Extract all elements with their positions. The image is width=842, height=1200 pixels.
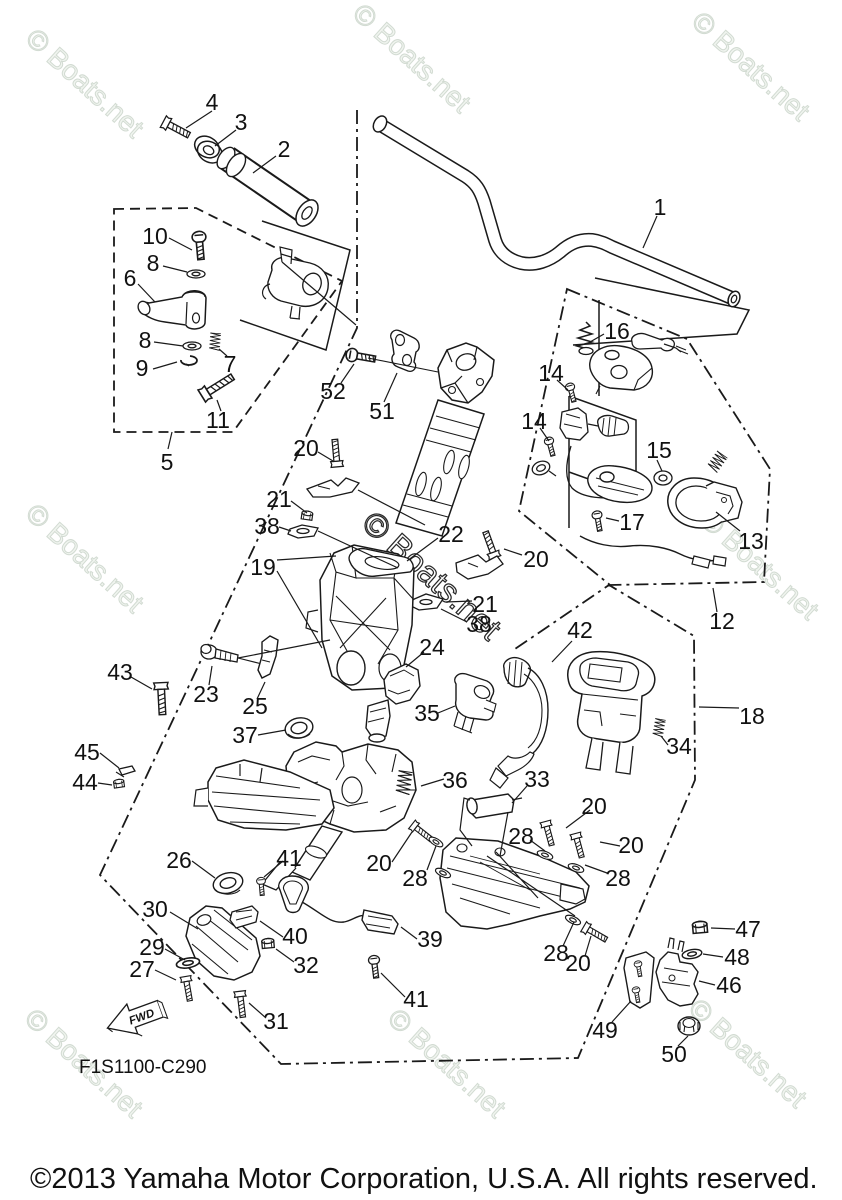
svg-text:18: 18: [739, 703, 765, 729]
svg-text:33: 33: [524, 766, 550, 792]
svg-text:43: 43: [107, 659, 133, 685]
svg-text:5: 5: [161, 449, 174, 475]
svg-text:15: 15: [646, 437, 672, 463]
svg-text:21: 21: [266, 486, 292, 512]
svg-text:42: 42: [567, 617, 593, 643]
svg-text:23: 23: [193, 681, 219, 707]
svg-text:36: 36: [442, 767, 468, 793]
svg-text:7: 7: [224, 351, 237, 377]
svg-text:11: 11: [206, 407, 230, 433]
svg-text:©2013 Yamaha Motor Corporation: ©2013 Yamaha Motor Corporation, U.S.A. A…: [30, 1163, 818, 1195]
svg-text:35: 35: [414, 700, 440, 726]
svg-text:31: 31: [263, 1008, 289, 1034]
svg-text:1: 1: [654, 194, 667, 220]
svg-text:37: 37: [232, 722, 258, 748]
svg-text:17: 17: [619, 509, 645, 535]
svg-text:16: 16: [604, 318, 630, 344]
svg-text:20: 20: [523, 546, 549, 572]
svg-text:30: 30: [142, 896, 168, 922]
svg-text:F1S1100-C290: F1S1100-C290: [79, 1057, 206, 1078]
svg-text:20: 20: [581, 793, 607, 819]
svg-text:48: 48: [724, 944, 750, 970]
svg-text:32: 32: [293, 952, 319, 978]
svg-text:25: 25: [242, 693, 268, 719]
svg-text:40: 40: [282, 923, 308, 949]
svg-text:29: 29: [139, 934, 165, 960]
svg-text:34: 34: [666, 733, 692, 759]
svg-text:28: 28: [543, 940, 569, 966]
svg-text:41: 41: [276, 845, 302, 871]
svg-text:51: 51: [369, 398, 395, 424]
svg-text:2: 2: [278, 136, 291, 162]
svg-text:8: 8: [139, 327, 152, 353]
svg-text:28: 28: [508, 823, 534, 849]
svg-text:44: 44: [72, 769, 98, 795]
svg-text:22: 22: [438, 521, 464, 547]
svg-text:41: 41: [403, 986, 429, 1012]
svg-text:28: 28: [605, 865, 631, 891]
svg-text:13: 13: [738, 528, 764, 554]
svg-text:52: 52: [320, 378, 346, 404]
svg-text:12: 12: [709, 608, 735, 634]
svg-text:26: 26: [166, 847, 192, 873]
svg-text:20: 20: [293, 435, 319, 461]
svg-text:24: 24: [419, 634, 445, 660]
svg-text:8: 8: [147, 250, 160, 276]
svg-text:3: 3: [235, 109, 248, 135]
svg-text:6: 6: [124, 265, 137, 291]
svg-text:20: 20: [565, 950, 591, 976]
svg-text:19: 19: [250, 554, 276, 580]
svg-text:38: 38: [466, 611, 492, 637]
svg-text:20: 20: [618, 832, 644, 858]
svg-text:20: 20: [366, 850, 392, 876]
svg-text:50: 50: [661, 1041, 687, 1067]
svg-text:14: 14: [521, 408, 547, 434]
svg-text:49: 49: [592, 1017, 618, 1043]
svg-text:9: 9: [136, 355, 149, 381]
svg-text:38: 38: [254, 513, 280, 539]
svg-text:10: 10: [142, 223, 168, 249]
svg-text:47: 47: [735, 916, 761, 942]
svg-text:14: 14: [538, 360, 564, 386]
svg-text:39: 39: [417, 926, 443, 952]
svg-text:45: 45: [74, 739, 100, 765]
svg-text:28: 28: [402, 865, 428, 891]
svg-text:4: 4: [206, 89, 219, 115]
svg-text:46: 46: [716, 972, 742, 998]
